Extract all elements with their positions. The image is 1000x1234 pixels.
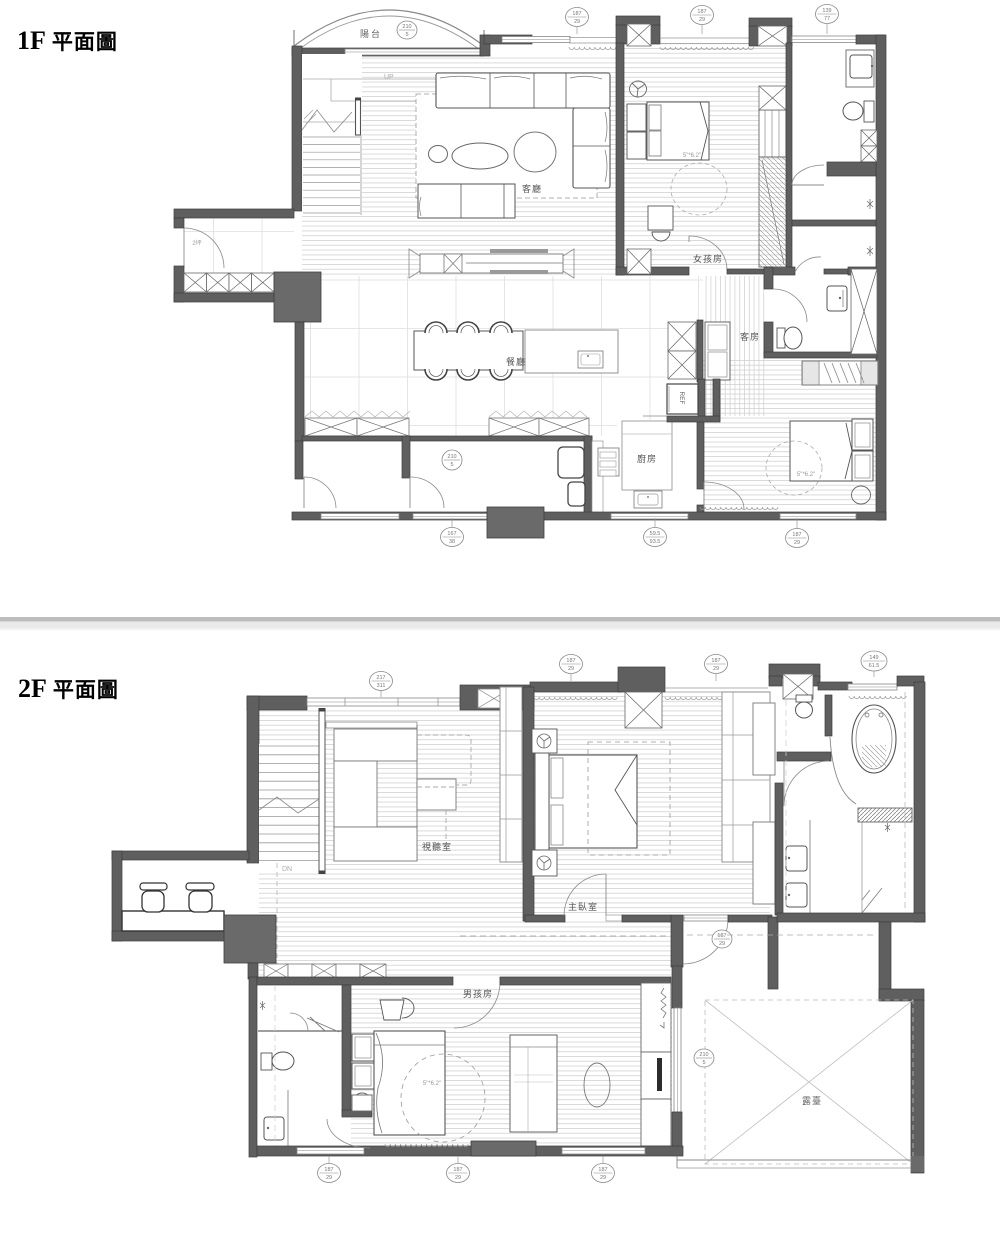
svg-text:187: 187 bbox=[717, 933, 726, 939]
svg-text:男孩房: 男孩房 bbox=[463, 988, 493, 999]
svg-text:客廳: 客廳 bbox=[522, 183, 542, 194]
svg-text:2F平面圖: 2F平面圖 bbox=[18, 674, 119, 703]
svg-text:5: 5 bbox=[405, 32, 408, 38]
svg-text:29: 29 bbox=[719, 941, 725, 947]
svg-text:29: 29 bbox=[713, 666, 719, 672]
svg-text:5"*6.2": 5"*6.2" bbox=[797, 472, 815, 478]
svg-text:REF: REF bbox=[678, 392, 685, 405]
svg-text:餐廳: 餐廳 bbox=[506, 356, 526, 367]
svg-text:210: 210 bbox=[699, 1052, 708, 1058]
svg-text:露臺: 露臺 bbox=[802, 1095, 822, 1106]
svg-text:29: 29 bbox=[568, 666, 574, 672]
svg-text:29: 29 bbox=[600, 1175, 606, 1181]
svg-text:187: 187 bbox=[598, 1167, 607, 1173]
svg-text:29: 29 bbox=[574, 19, 580, 25]
svg-text:5: 5 bbox=[702, 1060, 705, 1066]
svg-text:217: 217 bbox=[376, 675, 385, 681]
svg-text:主臥室: 主臥室 bbox=[568, 901, 598, 912]
svg-text:29: 29 bbox=[794, 540, 800, 546]
svg-text:187: 187 bbox=[711, 658, 720, 664]
svg-text:187: 187 bbox=[792, 532, 801, 538]
svg-text:187: 187 bbox=[566, 658, 575, 664]
svg-text:93.5: 93.5 bbox=[650, 539, 661, 545]
svg-text:客房: 客房 bbox=[740, 331, 760, 342]
svg-text:29: 29 bbox=[699, 17, 705, 23]
svg-text:149: 149 bbox=[869, 655, 878, 661]
svg-text:5: 5 bbox=[450, 462, 453, 468]
svg-text:311: 311 bbox=[377, 683, 386, 689]
svg-text:29: 29 bbox=[326, 1175, 332, 1181]
svg-text:陽台: 陽台 bbox=[360, 28, 382, 39]
svg-text:210: 210 bbox=[402, 24, 411, 30]
svg-text:139: 139 bbox=[822, 8, 831, 14]
svg-text:167: 167 bbox=[447, 531, 456, 537]
svg-text:UP: UP bbox=[384, 74, 394, 81]
svg-text:視聽室: 視聽室 bbox=[422, 841, 452, 852]
svg-text:77: 77 bbox=[824, 16, 830, 22]
svg-text:38: 38 bbox=[449, 539, 455, 545]
svg-text:DN: DN bbox=[282, 866, 292, 873]
svg-text:1F平面圖: 1F平面圖 bbox=[17, 26, 118, 55]
svg-text:5"*6.2": 5"*6.2" bbox=[423, 1081, 441, 1087]
svg-text:29: 29 bbox=[455, 1175, 461, 1181]
svg-text:59.5: 59.5 bbox=[650, 531, 661, 537]
svg-text:女孩房: 女孩房 bbox=[693, 253, 723, 264]
svg-text:61.5: 61.5 bbox=[869, 663, 880, 669]
svg-text:210: 210 bbox=[447, 454, 456, 460]
svg-text:187: 187 bbox=[453, 1167, 462, 1173]
svg-text:187: 187 bbox=[697, 9, 706, 15]
svg-text:廚房: 廚房 bbox=[637, 453, 657, 464]
svg-text:187: 187 bbox=[324, 1167, 333, 1173]
svg-text:2坪: 2坪 bbox=[192, 239, 201, 247]
svg-text:187: 187 bbox=[572, 11, 581, 17]
svg-text:5"*6.2": 5"*6.2" bbox=[683, 153, 701, 159]
